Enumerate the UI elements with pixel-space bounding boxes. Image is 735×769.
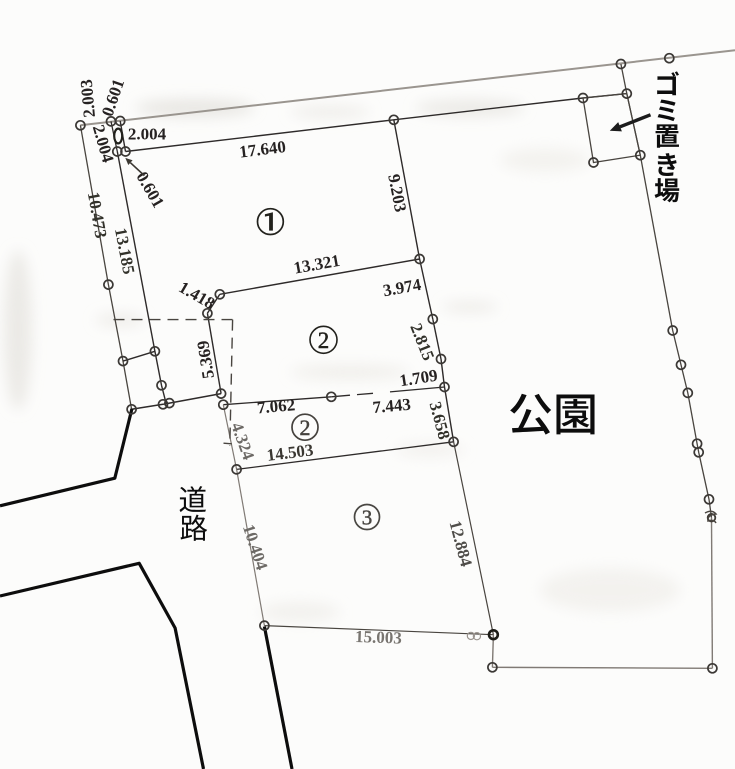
svg-text:2.815: 2.815: [406, 321, 438, 364]
svg-text:2: 2: [300, 415, 311, 440]
svg-text:0.601: 0.601: [98, 76, 128, 118]
svg-text:7.443: 7.443: [372, 395, 412, 417]
svg-text:3.658: 3.658: [426, 400, 454, 442]
svg-text:2.003: 2.003: [77, 79, 99, 119]
svg-text:10.404: 10.404: [239, 522, 272, 573]
svg-text:3: 3: [362, 506, 373, 530]
svg-text:14.503: 14.503: [266, 440, 315, 465]
svg-text:7.062: 7.062: [256, 395, 296, 417]
svg-text:0.601: 0.601: [132, 168, 168, 211]
svg-text:9.203: 9.203: [384, 172, 410, 213]
svg-text:2: 2: [318, 328, 330, 353]
svg-text:13.185: 13.185: [111, 226, 139, 276]
svg-text:2.004: 2.004: [89, 123, 118, 165]
svg-text:4.324: 4.324: [227, 420, 258, 463]
svg-text:2.004: 2.004: [128, 124, 167, 143]
svg-text:10.473: 10.473: [84, 190, 111, 239]
svg-text:5.369: 5.369: [193, 339, 218, 380]
svg-text:17.640: 17.640: [238, 137, 287, 162]
svg-text:15.003: 15.003: [355, 627, 402, 648]
svg-text:3.974: 3.974: [382, 275, 423, 300]
